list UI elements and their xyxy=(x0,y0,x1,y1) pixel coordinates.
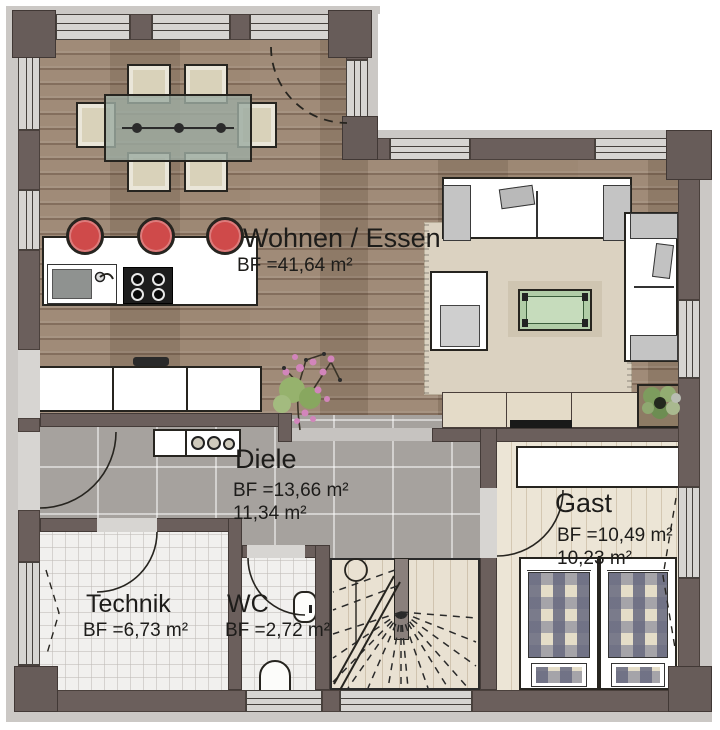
floor-plan: Wohnen / Essen BF =41,64 m² Diele BF =13… xyxy=(0,0,720,730)
plant-living-icon xyxy=(642,386,681,419)
plant-orchid-icon xyxy=(273,352,342,430)
terrace-door-dashed-arc xyxy=(271,47,347,123)
guest-door-arc xyxy=(497,490,563,556)
front-door-arc xyxy=(40,432,116,508)
stair-treads xyxy=(333,570,476,688)
technik-door-arc xyxy=(97,532,157,592)
stair-post-symbol xyxy=(345,559,367,581)
guest-window-swing xyxy=(663,498,676,654)
stair-railing xyxy=(334,576,394,684)
technik-window-swing xyxy=(46,570,59,657)
plan-annotations xyxy=(0,0,720,730)
stair-railing xyxy=(340,582,400,690)
wc-door-arc xyxy=(248,558,305,615)
